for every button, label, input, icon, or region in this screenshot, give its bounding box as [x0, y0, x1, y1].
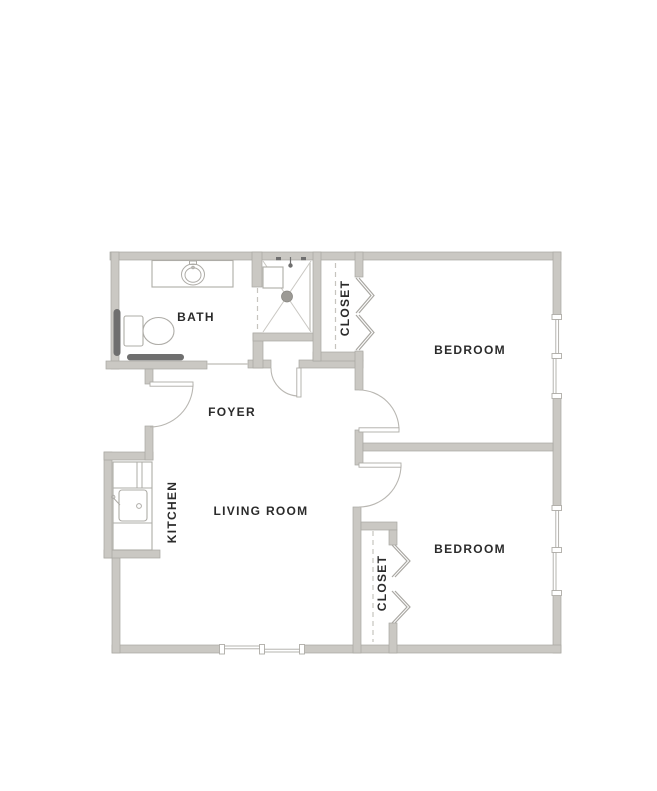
- wall-kitchen-nook-bottom: [104, 550, 160, 558]
- wall-kitchen-nook-west: [104, 452, 112, 558]
- wall-closet2-top: [361, 522, 397, 530]
- closet-2-bifold-doors: [392, 545, 410, 623]
- bedroom-2-door-leaf: [359, 463, 401, 467]
- window-living-room: [220, 645, 305, 655]
- hall-closet-door-swing-arc: [271, 368, 299, 396]
- wall-entry-stub-lower: [145, 426, 153, 460]
- hall-closet-door-leaf: [297, 368, 301, 397]
- bedroom-1-door: [359, 390, 399, 432]
- toilet: [124, 316, 174, 346]
- room-label-closet-1: CLOSET: [338, 280, 352, 336]
- wall-top: [110, 252, 561, 260]
- kitchen-fixtures: [112, 462, 153, 550]
- bedroom-1-door-swing-arc: [359, 390, 399, 430]
- wall-bedroom1-west-at-tee: [355, 430, 363, 465]
- room-label-closet-2: CLOSET: [375, 555, 389, 611]
- room-label-bath: BATH: [177, 310, 215, 324]
- room-label-bedroom-2: BEDROOM: [434, 542, 506, 556]
- toilet-tank: [124, 316, 143, 346]
- room-label-foyer: FOYER: [208, 405, 256, 419]
- bedroom-2-door: [359, 463, 401, 507]
- room-label-living-room: LIVING ROOM: [214, 504, 309, 518]
- floor-plan: BATH CLOSET BEDROOM FOYER KITCHEN LIVING…: [0, 0, 657, 791]
- wall-closet2-stub-lower: [389, 623, 397, 653]
- entry-door-swing-arc: [150, 384, 193, 427]
- shower-drain: [282, 291, 293, 302]
- bath-fixtures: [114, 261, 234, 361]
- closet-1-bifold-doors: [356, 278, 374, 350]
- room-label-bedroom-1: BEDROOM: [434, 343, 506, 357]
- wall-closet2-west: [353, 507, 361, 653]
- wall-closet1-west: [313, 252, 321, 361]
- room-label-kitchen: KITCHEN: [165, 481, 179, 543]
- wall-left-lower: [112, 550, 120, 653]
- wall-bedroom-divider: [363, 443, 553, 451]
- shower-head-icon: [276, 257, 306, 268]
- wall-bath-bottom: [106, 361, 207, 369]
- floor-plan-canvas: [0, 0, 657, 791]
- towel-bar: [127, 354, 184, 360]
- shower: [263, 257, 311, 332]
- toilet-bowl: [143, 318, 174, 345]
- bedroom-1-door-leaf: [359, 428, 399, 432]
- wall-bottom: [112, 645, 561, 653]
- shower-bench: [263, 267, 283, 288]
- grab-bar: [114, 309, 121, 356]
- wall-closet2-stub-upper: [389, 530, 397, 545]
- bedroom-2-door-swing-arc: [359, 465, 401, 507]
- window-bedroom-1: [552, 315, 563, 400]
- entry-door: [150, 382, 193, 427]
- wall-shower-bottom: [253, 333, 317, 341]
- entry-door-leaf: [150, 382, 193, 386]
- wall-bedroom1-west-stub-top: [355, 252, 363, 277]
- wall-bedroom1-west-mid: [355, 351, 363, 390]
- wall-shower-west-upper: [252, 252, 262, 287]
- interior-walls: [106, 252, 553, 653]
- exterior-walls: [104, 252, 561, 653]
- hall-closet-door: [271, 368, 301, 397]
- window-bedroom-2: [552, 506, 563, 597]
